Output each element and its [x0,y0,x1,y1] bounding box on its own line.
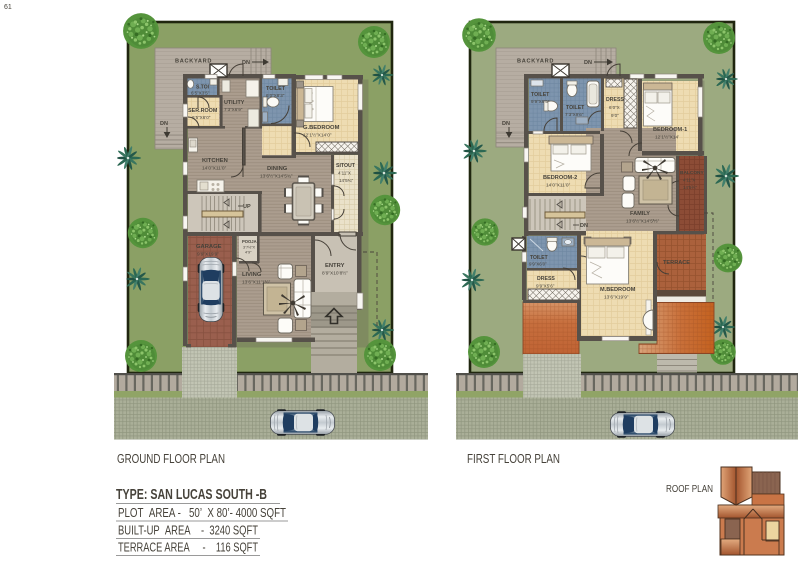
svg-text:BUILT-UP AREA - 3240 SQFT: BUILT-UP AREA - 3240 SQFT [118,523,258,538]
svg-text:BALCONY: BALCONY [680,170,705,176]
svg-text:ENTRY: ENTRY [325,263,345,269]
svg-text:UP: UP [243,204,251,210]
svg-text:14’0”X11’0”: 14’0”X11’0” [546,183,571,189]
svg-text:13’6½”X14’5⅕”: 13’6½”X14’5⅕” [626,218,660,225]
svg-text:13’6”X11’1½”: 13’6”X11’1½” [242,279,271,286]
svg-text:DN: DN [580,223,588,229]
svg-text:ROOF PLAN: ROOF PLAN [666,484,713,495]
svg-text:9’9”X19’9”: 9’9”X19’9” [197,252,219,258]
svg-text:9’0”: 9’0” [611,113,619,118]
svg-text:TERRACE AREA - 116 SQFT: TERRACE AREA - 116 SQFT [118,540,258,555]
svg-text:UTILITY: UTILITY [224,100,245,106]
svg-text:12’1½”X14’: 12’1½”X14’ [655,134,679,141]
svg-text:4’11”X: 4’11”X [683,178,695,183]
svg-text:DRESS: DRESS [606,97,624,103]
svg-text:TOILET: TOILET [531,92,550,98]
svg-text:7’3”X9’6”: 7’3”X9’6” [565,112,584,117]
svg-text:TYPE: SAN LUCAS SOUTH -B: TYPE: SAN LUCAS SOUTH -B [116,487,267,503]
svg-text:3’7½”X: 3’7½”X [243,246,255,250]
svg-text:BACKYARD: BACKYARD [517,59,554,65]
svg-text:KITCHEN: KITCHEN [202,158,228,164]
svg-text:61: 61 [4,4,12,11]
svg-text:M.BEDROOM: M.BEDROOM [600,287,636,293]
svg-text:7’3”X6’9”: 7’3”X6’9” [224,107,243,112]
svg-text:4’11”X: 4’11”X [338,171,351,176]
svg-text:DN: DN [584,60,592,66]
svg-text:FAMILY: FAMILY [630,211,650,217]
svg-text:6’0”X8’3”: 6’0”X8’3” [266,93,285,98]
svg-text:GROUND FLOOR PLAN: GROUND FLOOR PLAN [117,451,225,466]
svg-text:TOILET: TOILET [266,86,286,92]
svg-text:PLOT AREA - 50’ X 80’- 400: PLOT AREA - 50’ X 80’- 4000 SQFT [118,505,286,520]
svg-text:13’6½”X14’5¾”: 13’6½”X14’5¾” [260,173,293,180]
svg-text:FIRST FLOOR PLAN: FIRST FLOOR PLAN [467,451,560,466]
svg-text:TERRACE: TERRACE [663,260,690,266]
svg-text:GARAGE: GARAGE [196,244,222,250]
svg-text:DINING: DINING [267,166,288,172]
svg-text:14’5⅕”: 14’5⅕” [683,185,698,190]
svg-text:SITOUT: SITOUT [336,163,356,169]
svg-text:DN: DN [502,121,510,127]
svg-text:6’0”X: 6’0”X [609,105,620,110]
svg-text:DN: DN [160,121,168,127]
svg-text:9’9”X6’5”: 9’9”X6’5” [531,99,550,104]
svg-text:4’9”: 4’9” [245,251,252,255]
svg-text:POOJA: POOJA [242,239,257,244]
svg-text:BEDROOM-1: BEDROOM-1 [653,127,687,133]
svg-text:9’9”X5’6”: 9’9”X5’6” [536,284,555,289]
svg-text:14’0”X11’0”: 14’0”X11’0” [202,166,227,172]
svg-text:TOILET: TOILET [530,255,548,261]
svg-text:TOILET: TOILET [566,105,585,111]
svg-text:BACKYARD: BACKYARD [175,59,212,65]
svg-text:BEDROOM-2: BEDROOM-2 [543,175,577,181]
svg-text:DRESS: DRESS [537,276,555,282]
svg-text:13’6”X19’9”: 13’6”X19’9” [604,295,629,301]
svg-text:6’5”X3’5”: 6’5”X3’5” [191,91,210,96]
svg-text:12’1½”X14’0”: 12’1½”X14’0” [303,132,332,139]
svg-text:SER.ROOM: SER.ROOM [188,108,218,114]
svg-text:G.BEDROOM: G.BEDROOM [303,125,340,131]
svg-text:14’5¾”: 14’5¾” [339,178,354,183]
svg-text:8’9”X10’8½”: 8’9”X10’8½” [322,270,348,277]
svg-text:6’5”X6’0”: 6’5”X6’0” [192,115,211,120]
svg-text:9’9”X6’0”: 9’9”X6’0” [529,262,547,267]
svg-text:LIVING: LIVING [242,272,262,278]
